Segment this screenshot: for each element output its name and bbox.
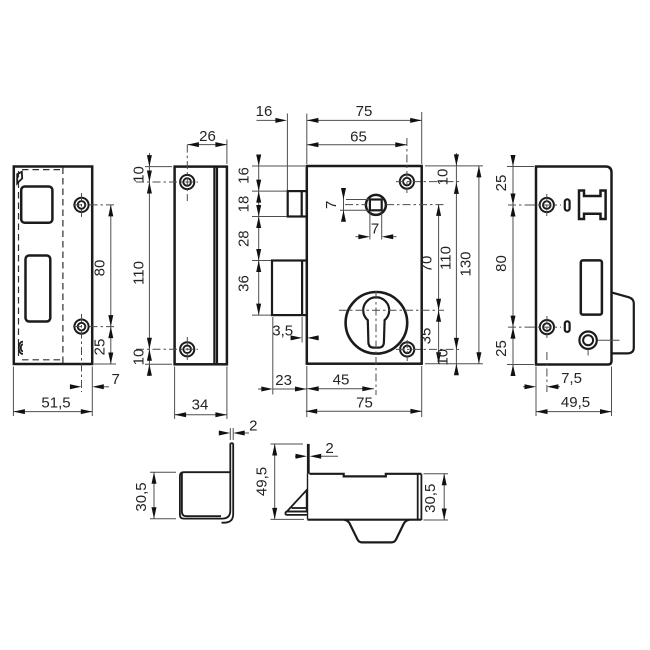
svg-text:26: 26 xyxy=(199,128,216,145)
svg-text:80: 80 xyxy=(493,255,510,272)
svg-text:49,5: 49,5 xyxy=(254,467,271,496)
svg-text:25: 25 xyxy=(493,340,510,357)
svg-text:16: 16 xyxy=(236,167,253,184)
svg-text:51,5: 51,5 xyxy=(41,395,70,412)
svg-text:23: 23 xyxy=(275,372,292,389)
svg-text:30,5: 30,5 xyxy=(422,484,439,513)
svg-text:7,5: 7,5 xyxy=(561,370,582,387)
svg-text:10: 10 xyxy=(131,349,148,366)
svg-text:110: 110 xyxy=(437,246,454,270)
svg-text:25: 25 xyxy=(92,339,109,356)
svg-text:10: 10 xyxy=(435,349,452,366)
svg-text:49,5: 49,5 xyxy=(561,394,590,411)
svg-text:28: 28 xyxy=(236,230,253,247)
svg-text:70: 70 xyxy=(418,256,435,273)
svg-text:7: 7 xyxy=(323,201,340,209)
svg-text:75: 75 xyxy=(356,103,373,120)
svg-text:110: 110 xyxy=(131,261,148,285)
svg-text:10: 10 xyxy=(435,169,452,186)
svg-text:34: 34 xyxy=(192,397,209,414)
svg-text:75: 75 xyxy=(356,395,373,412)
svg-text:2: 2 xyxy=(325,440,333,457)
svg-text:18: 18 xyxy=(236,196,253,213)
svg-text:3,5: 3,5 xyxy=(272,323,293,340)
svg-text:7: 7 xyxy=(112,371,120,388)
svg-text:2: 2 xyxy=(249,418,257,435)
svg-text:10: 10 xyxy=(131,166,148,183)
svg-text:30,5: 30,5 xyxy=(133,482,150,511)
svg-text:25: 25 xyxy=(493,175,510,192)
svg-text:35: 35 xyxy=(418,328,435,345)
svg-text:16: 16 xyxy=(256,103,273,120)
svg-text:7: 7 xyxy=(371,221,379,238)
svg-text:65: 65 xyxy=(350,129,367,146)
svg-text:80: 80 xyxy=(92,260,109,277)
svg-text:130: 130 xyxy=(458,251,475,276)
svg-text:45: 45 xyxy=(333,372,350,389)
svg-text:36: 36 xyxy=(236,275,253,292)
